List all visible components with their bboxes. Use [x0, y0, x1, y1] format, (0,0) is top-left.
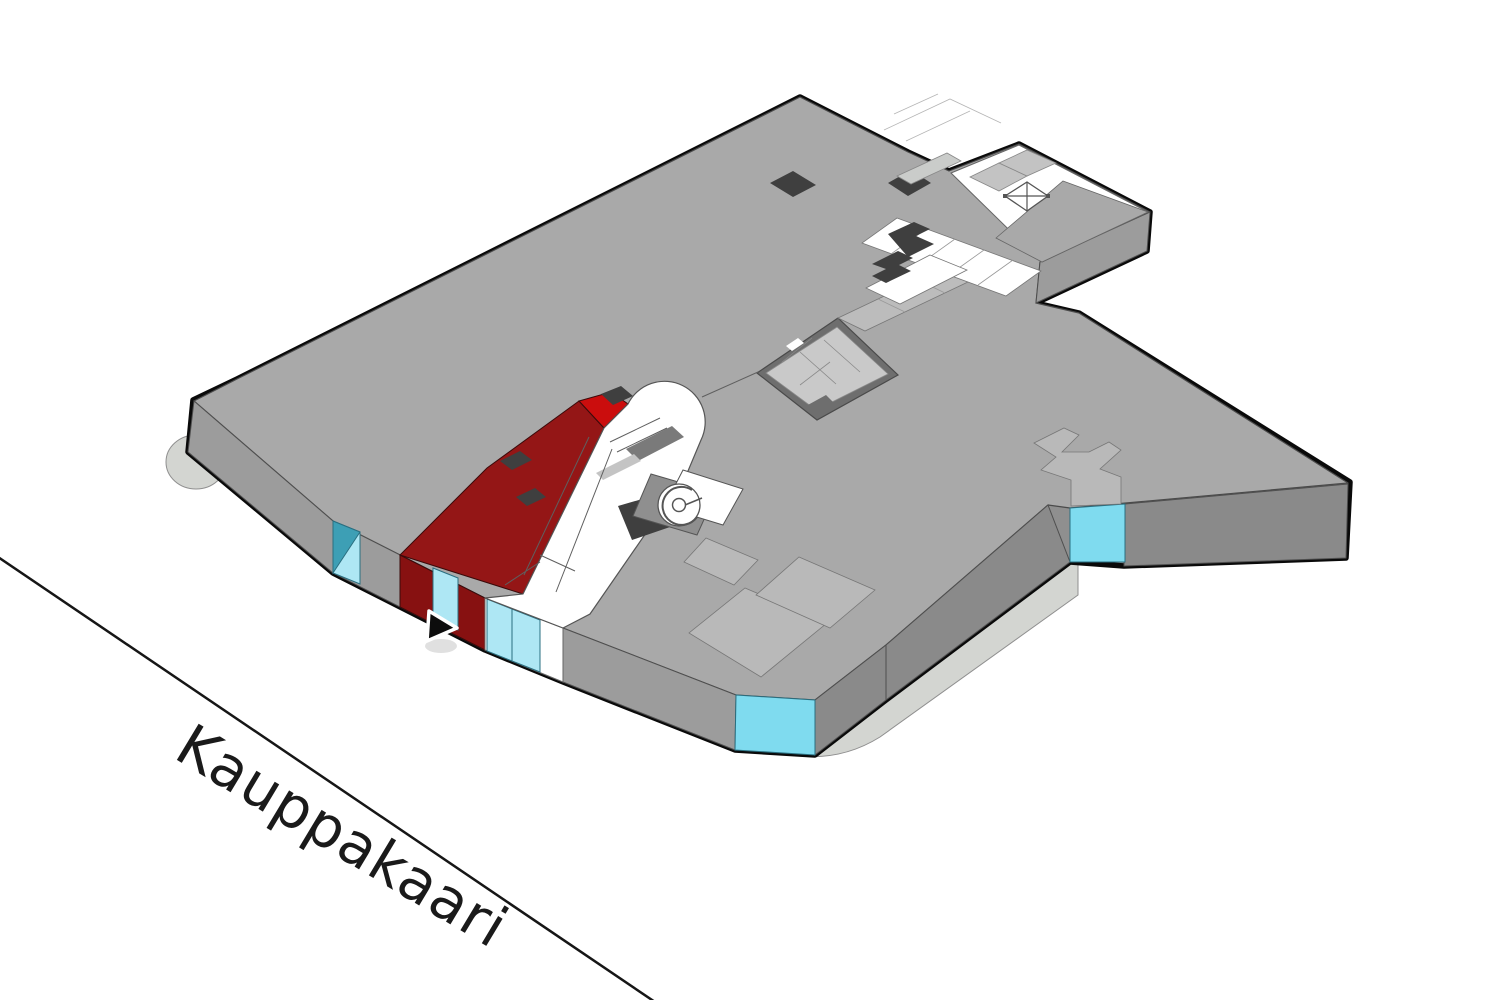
neighbor-outline	[884, 94, 1001, 141]
floorplan-page: Kauppakaari	[0, 0, 1500, 1000]
glass-panel-unit-2	[512, 609, 540, 672]
glass-panel-wing	[1070, 504, 1125, 562]
street-label: Kauppakaari	[165, 711, 520, 961]
glass-panel-unit-1	[487, 599, 512, 661]
glass-panel-corner	[735, 695, 815, 755]
mall-floorplan-map: Kauppakaari	[0, 0, 1500, 1000]
